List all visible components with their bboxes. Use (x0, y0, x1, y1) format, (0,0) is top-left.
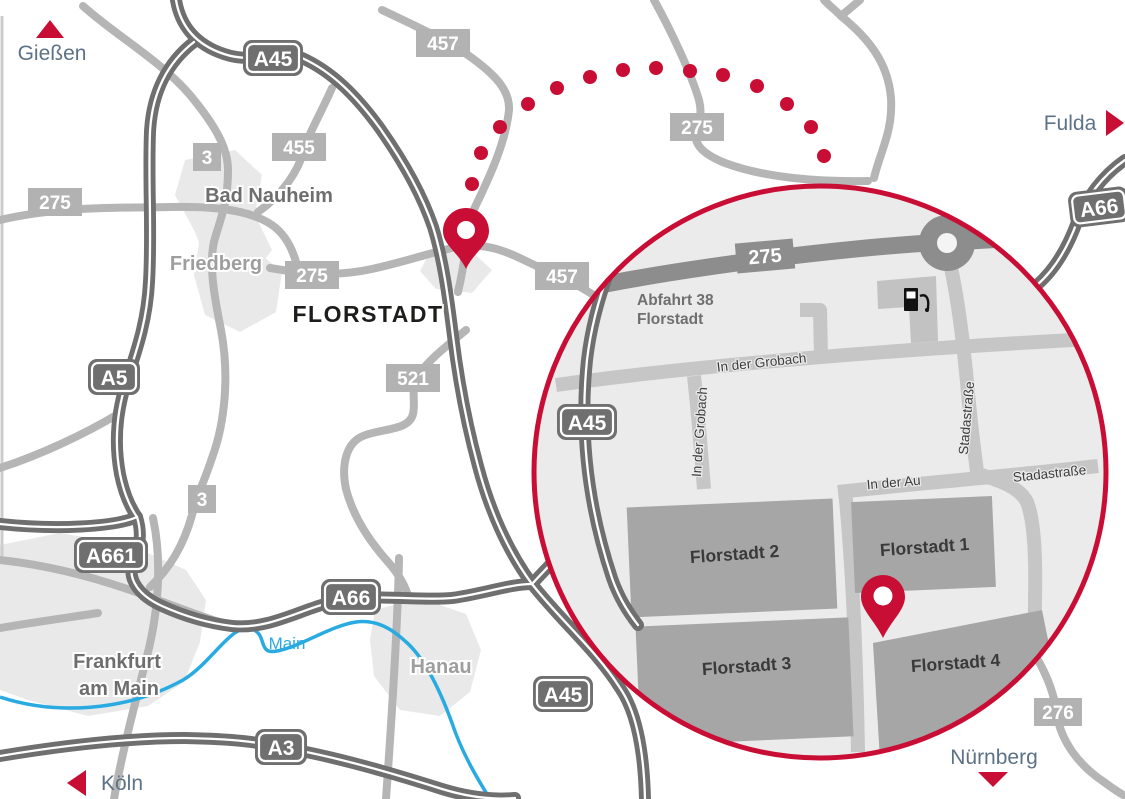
arrow-down-icon (978, 772, 1008, 787)
svg-text:275: 275 (296, 266, 328, 287)
svg-text:275: 275 (39, 193, 71, 214)
svg-text:A45: A45 (254, 48, 293, 71)
road-badge-3-north: 3 (193, 143, 221, 171)
svg-text:521: 521 (397, 369, 429, 390)
exit-label-line1: Abfahrt 38 (637, 292, 714, 309)
arrow-right-icon (1106, 110, 1124, 136)
direction-label-koeln: Köln (101, 772, 143, 795)
svg-text:276: 276 (1042, 703, 1074, 724)
svg-text:A45: A45 (544, 684, 583, 707)
road-badge-521: 521 (386, 364, 440, 392)
motorway-badge-a45-south: A45 (533, 676, 593, 712)
city-label-florstadt: FLORSTADT (292, 301, 443, 327)
roundabout-icon (919, 215, 975, 271)
arrow-up-icon (36, 20, 64, 38)
road-top-right-c (841, 16, 891, 178)
road-badge-455: 455 (272, 133, 326, 161)
dotted-route (465, 61, 831, 191)
route-map: 275 275 275 455 457 457 521 3 3 276 A45 … (0, 0, 1125, 799)
svg-text:A3: A3 (268, 737, 295, 760)
motorway-badge-a66-west: A66 (321, 579, 381, 615)
direction-label-nuernberg: Nürnberg (950, 746, 1038, 769)
inset-detail-circle: In der Grobach In der Grobach Stadastraß… (534, 186, 1110, 760)
road-badge-275-west: 275 (28, 188, 82, 216)
road-badge-3-south: 3 (188, 485, 216, 513)
road-badge-275-north: 275 (670, 113, 724, 141)
motorway-badge-a3: A3 (255, 729, 307, 765)
svg-text:A66: A66 (332, 587, 371, 610)
road-badge-457-mid: 457 (535, 262, 589, 290)
road-frankfurt-west-branch (0, 414, 118, 468)
road-badge-457-north: 457 (416, 29, 470, 57)
svg-text:3: 3 (202, 148, 213, 169)
road-badge-275-mid: 275 (285, 261, 339, 289)
river-label-main: Main (269, 634, 306, 653)
motorway-badge-a66-east: A66 (1067, 185, 1125, 228)
road-b276 (1038, 660, 1125, 796)
svg-text:3: 3 (197, 490, 208, 511)
city-label-bad-nauheim: Bad Nauheim (205, 185, 333, 207)
svg-text:275: 275 (681, 118, 713, 139)
building-florstadt-3 (636, 617, 854, 745)
svg-text:455: 455 (283, 138, 315, 159)
svg-text:A661: A661 (86, 545, 137, 568)
city-label-frankfurt-line2: am Main (79, 678, 159, 700)
city-label-frankfurt-line1: Frankfurt (73, 651, 161, 673)
svg-text:A66: A66 (1079, 195, 1120, 223)
motorway-badge-a5: A5 (88, 359, 140, 395)
map-canvas: 275 275 275 455 457 457 521 3 3 276 A45 … (0, 0, 1125, 799)
city-label-hanau: Hanau (410, 656, 471, 678)
direction-label-giessen: Gießen (18, 42, 87, 65)
inset-road-badge-275: 275 (735, 239, 795, 274)
motorway-badge-a45-north: A45 (243, 40, 303, 76)
svg-text:457: 457 (427, 34, 459, 55)
inset-motorway-badge-a45: A45 (557, 404, 617, 440)
exit-label-line2: Florstadt (637, 311, 703, 328)
road-badge-276: 276 (1034, 698, 1082, 726)
city-label-friedberg: Friedberg (170, 253, 262, 275)
svg-text:A45: A45 (568, 412, 607, 435)
svg-text:457: 457 (546, 267, 578, 288)
motorway-badge-a661: A661 (74, 537, 148, 573)
arrow-left-icon (67, 770, 86, 796)
svg-text:275: 275 (748, 245, 783, 270)
svg-text:A5: A5 (101, 367, 128, 390)
direction-label-fulda: Fulda (1044, 112, 1097, 135)
